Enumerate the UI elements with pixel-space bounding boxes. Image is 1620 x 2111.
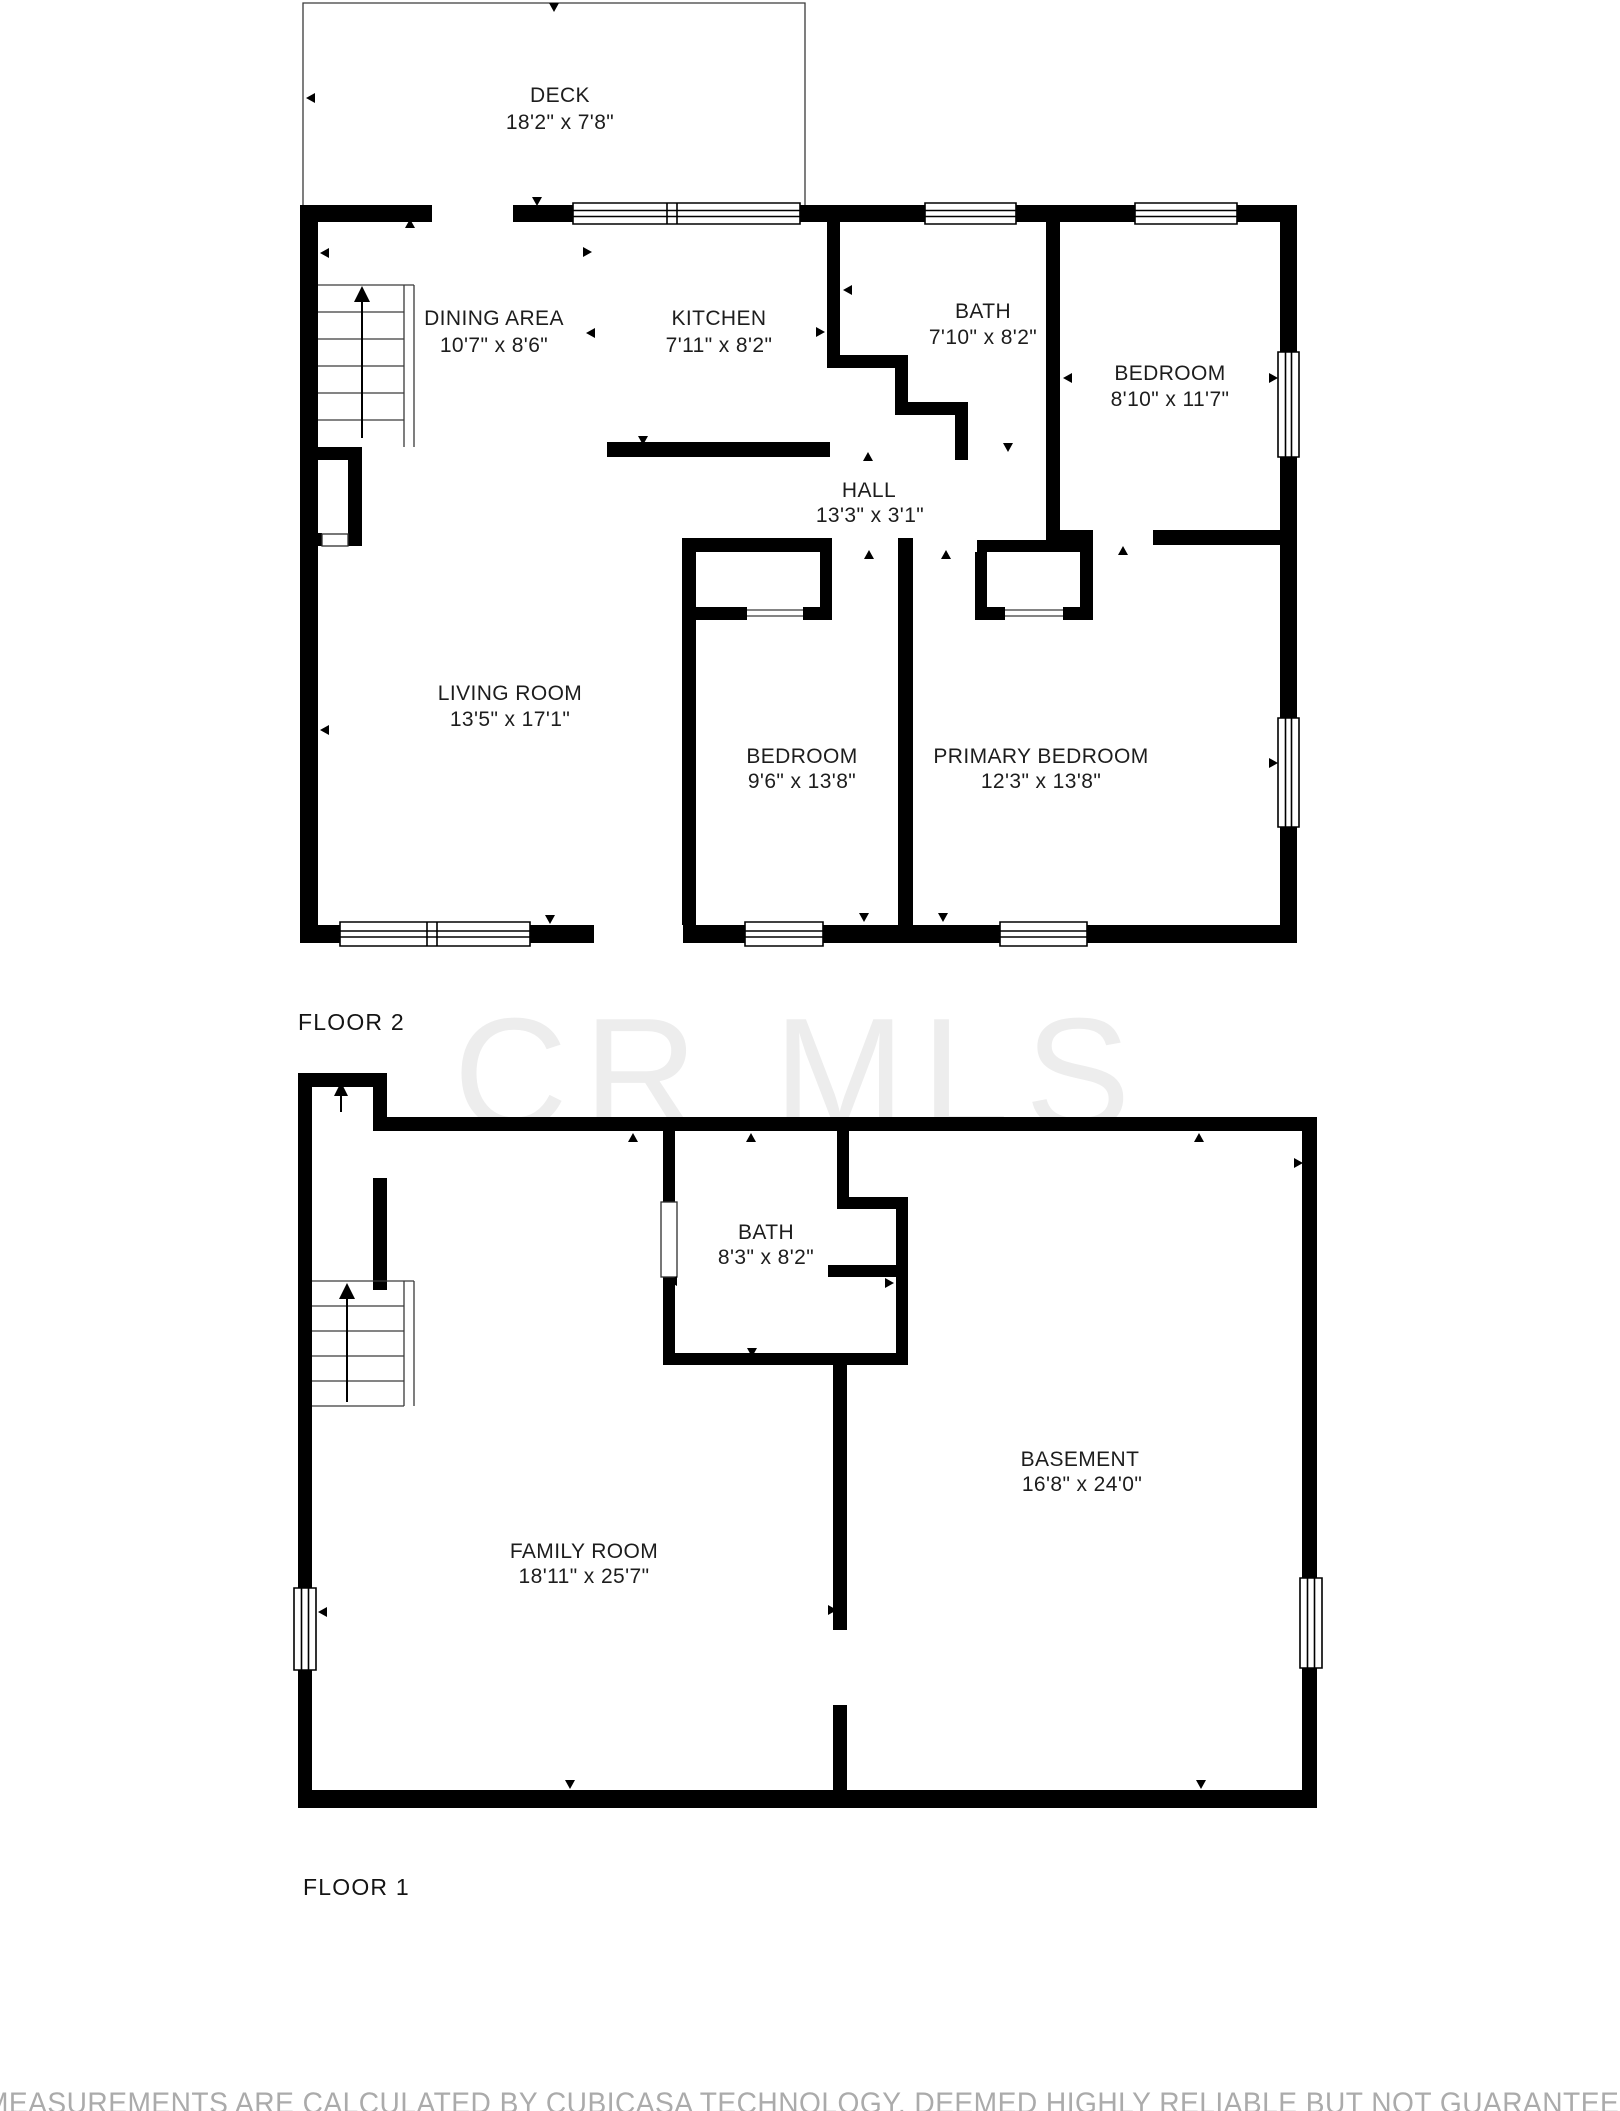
floor2-window-kitchen — [573, 203, 800, 224]
floor1-room-bath-dims: 8'3" x 8'2" — [718, 1246, 814, 1269]
floor2-window-bedroom-top — [1135, 203, 1237, 224]
floor1-room-basement-dims: 16'8" x 24'0" — [1022, 1473, 1142, 1496]
floorplan-page: CR MLS DECK 18'2" x 7'8" DINING AREA 10'… — [0, 0, 1620, 2111]
floor2-window-bedroom-top-right — [1278, 352, 1299, 457]
floor2-room-deck-name: DECK — [530, 84, 590, 107]
floor2-understairs-door — [322, 534, 348, 546]
floor2-room-kitchen-dims: 7'11" x 8'2" — [666, 334, 773, 357]
floor1-window-right — [1300, 1578, 1322, 1668]
floor2-room-bedroom-top-name: BEDROOM — [1114, 362, 1225, 385]
floor2-room-bath-dims: 7'10" x 8'2" — [929, 326, 1037, 349]
floor2-window-bath — [925, 203, 1016, 224]
floor1-label: FLOOR 1 — [303, 1874, 410, 1900]
floor2-room-kitchen-name: KITCHEN — [672, 307, 767, 330]
floor2-room-living-dims: 13'5" x 17'1" — [450, 708, 570, 731]
floor1-bath-door — [661, 1202, 677, 1277]
floor2-room-living-name: LIVING ROOM — [438, 682, 582, 705]
floor2-room-bedroom-top-dims: 8'10" x 11'7" — [1111, 388, 1230, 411]
floor1-room-bath-name: BATH — [738, 1221, 794, 1244]
watermark-text: CR MLS — [454, 986, 1147, 1162]
floor2-room-bedroom-middle-dims: 9'6" x 13'8" — [748, 770, 856, 793]
floor2-room-primary-dims: 12'3" x 13'8" — [981, 770, 1101, 793]
floor2-room-bedroom-middle-name: BEDROOM — [746, 745, 857, 768]
floor2-room-dining-dims: 10'7" x 8'6" — [440, 334, 548, 357]
floor2-room-primary-name: PRIMARY BEDROOM — [933, 745, 1148, 768]
floor2-window-bedroom-middle — [745, 922, 823, 946]
floor2-label: FLOOR 2 — [298, 1009, 405, 1035]
floor2-room-dining-name: DINING AREA — [424, 307, 564, 330]
floor2-room-deck-dims: 18'2" x 7'8" — [506, 111, 614, 134]
floor1-room-basement-name: BASEMENT — [1021, 1448, 1140, 1471]
floor1-room-family-name: FAMILY ROOM — [510, 1540, 658, 1563]
disclaimer-text: MEASUREMENTS ARE CALCULATED BY CUBICASA … — [0, 2087, 1620, 2111]
floor2-room-hall-dims: 13'3" x 3'1" — [816, 504, 924, 527]
floor2-window-primary-right — [1278, 718, 1299, 827]
floor2-window-living — [340, 922, 530, 946]
floor1-room-family-dims: 18'11" x 25'7" — [519, 1565, 650, 1588]
floor2-window-primary — [1000, 922, 1087, 946]
floor2-room-hall-name: HALL — [842, 479, 896, 502]
floorplan-canvas: CR MLS DECK 18'2" x 7'8" DINING AREA 10'… — [0, 0, 1620, 2111]
floor2-room-bath-name: BATH — [955, 300, 1011, 323]
floor1-window-left — [294, 1588, 316, 1670]
